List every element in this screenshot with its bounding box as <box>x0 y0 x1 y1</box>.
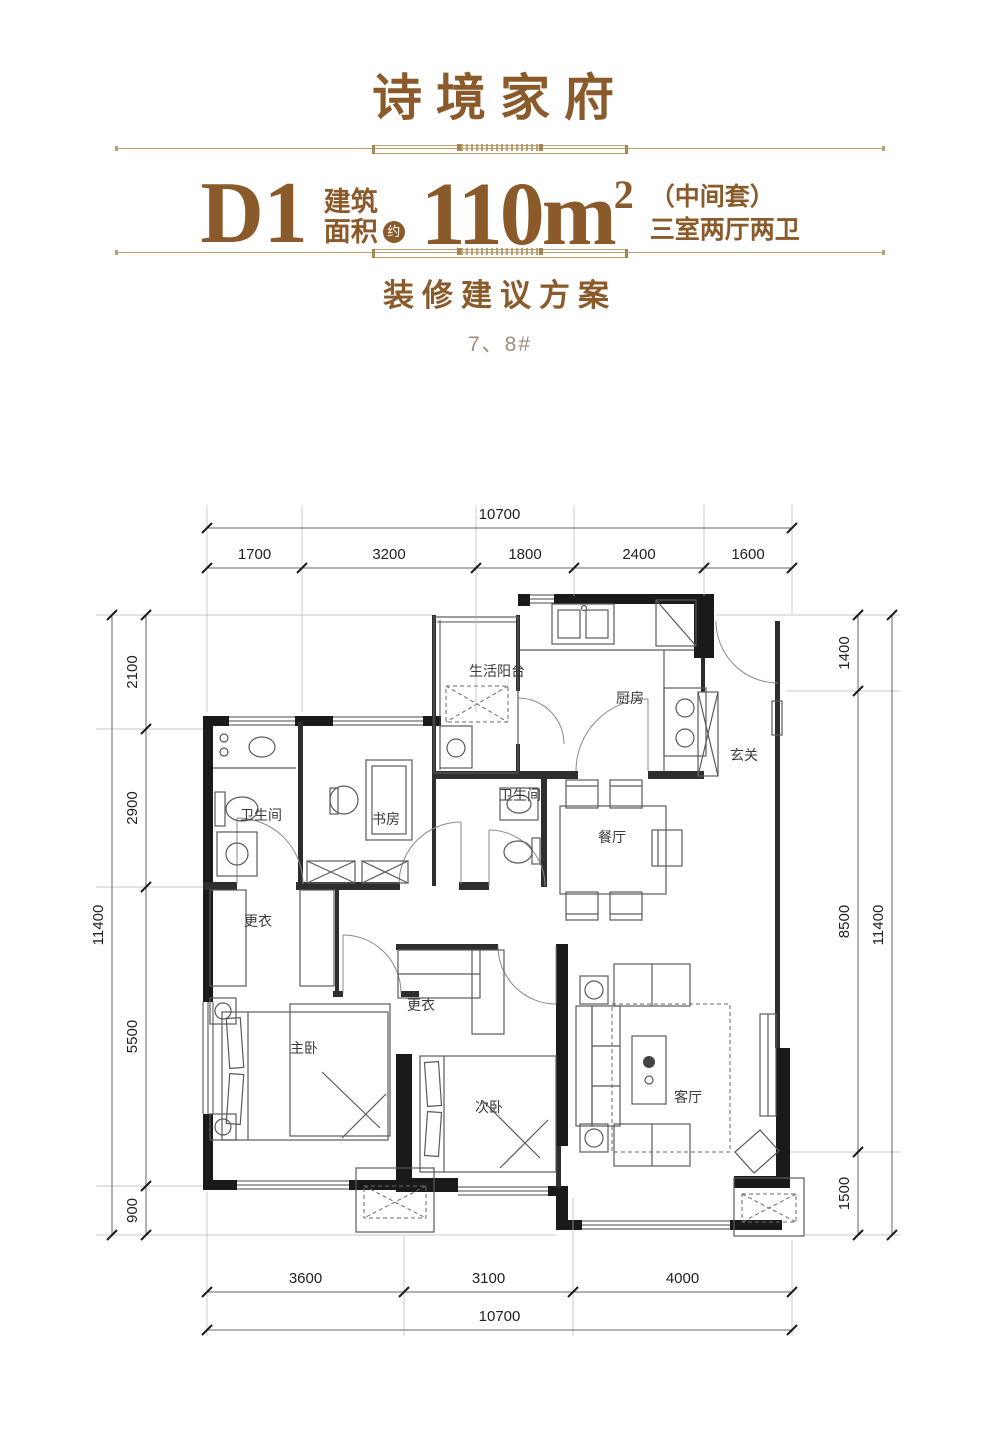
floor-plan: 1070017003200180024001600360031004000107… <box>0 460 1000 1340</box>
unit-info: （中间套） 三室两厅两卫 <box>650 181 800 253</box>
window-kitchen <box>530 594 554 604</box>
dim-total-bottom: 10700 <box>479 1308 521 1325</box>
room-label-master-bedroom: 主卧 <box>290 1041 318 1057</box>
room-label-kitchen: 厨房 <box>616 691 644 707</box>
balcony-door-arc <box>518 698 564 744</box>
furniture-master-bedroom <box>210 998 390 1140</box>
entry-door-arc <box>716 621 778 683</box>
approx-badge: 约 <box>383 221 405 243</box>
building-numbers: 7、8# <box>0 328 1000 358</box>
area-label-top: 建筑 <box>324 187 405 217</box>
dim-label-left-0: 2100 <box>124 655 141 688</box>
dim-label-left-1: 2900 <box>124 791 141 824</box>
window-study <box>333 716 423 726</box>
area-label-bottom: 面积 <box>324 217 378 247</box>
window-living-bottom <box>582 1220 730 1230</box>
dim-label-top-1: 3200 <box>372 546 405 563</box>
room-label-dressing-1: 更衣 <box>244 914 272 930</box>
divider-hatch <box>457 248 543 255</box>
kitchen-door-arc <box>576 699 648 771</box>
windows <box>202 594 730 1230</box>
room-label-entry: 玄关 <box>730 747 758 764</box>
furniture-bath1 <box>213 734 296 876</box>
dim-label-left-3: 900 <box>124 1198 141 1223</box>
page-title: 诗境家府 <box>0 58 1000 130</box>
unit-position: （中间套） <box>650 181 800 215</box>
window-bedroom2-bottom <box>458 1186 548 1196</box>
dim-total-left: 11400 <box>90 905 107 946</box>
furniture-living-room <box>576 964 779 1173</box>
furniture-kitchen <box>520 600 706 771</box>
furniture-dining <box>560 780 682 920</box>
furniture-dressing1 <box>210 890 334 986</box>
dim-label-bottom-2: 4000 <box>666 1270 699 1287</box>
spec-row: D1 建筑 面积 约 110m2 （中间套） 三室两厅两卫 <box>0 152 1000 252</box>
dim-label-bottom-0: 3600 <box>289 1270 322 1287</box>
dim-label-right-2: 1500 <box>836 1177 853 1210</box>
dim-label-left-2: 5500 <box>124 1020 141 1053</box>
master-door-arc <box>343 935 401 993</box>
subtitle: 装修建议方案 <box>0 270 1000 315</box>
area-label: 建筑 面积 约 <box>324 187 405 252</box>
room-label-living-balcony: 生活阳台 <box>469 664 525 680</box>
bath1-door-arc <box>237 818 303 884</box>
room-label-dressing-2: 更衣 <box>407 998 435 1014</box>
window-master-left <box>202 1002 214 1114</box>
room-label-second-bedroom: 次卧 <box>475 1100 503 1116</box>
room-label-bath-2: 卫生间 <box>499 788 541 804</box>
area-exponent: 2 <box>614 179 634 212</box>
dim-label-top-4: 1600 <box>731 546 764 563</box>
area-value: 110m2 <box>421 178 634 252</box>
page: { "header": { "title": "诗境家府", "plan_cod… <box>0 0 1000 1438</box>
unit-layout: 三室两厅两卫 <box>650 214 800 248</box>
room-label-dining: 餐厅 <box>598 830 626 846</box>
room-label-bath-1: 卫生间 <box>240 808 282 824</box>
ac-platform-left <box>356 1168 434 1232</box>
dim-label-right-1: 8500 <box>836 905 853 938</box>
window-bath1 <box>229 716 295 726</box>
dim-total-top: 10700 <box>479 506 521 523</box>
room-label-living-room: 客厅 <box>674 1089 702 1106</box>
ornament-divider-bottom <box>115 248 885 258</box>
dim-label-right-0: 1400 <box>836 636 853 669</box>
bedroom2-door-arc <box>498 946 556 1004</box>
dim-label-top-0: 1700 <box>238 546 271 563</box>
dim-label-top-3: 2400 <box>622 546 655 563</box>
dim-total-right: 11400 <box>870 905 887 946</box>
plan-code: D1 <box>200 175 308 252</box>
dim-label-bottom-1: 3100 <box>472 1270 505 1287</box>
window-master-bottom <box>237 1180 349 1190</box>
divider-hatch <box>457 144 543 151</box>
room-label-study: 书房 <box>372 812 400 828</box>
dim-label-top-2: 1800 <box>508 546 541 563</box>
